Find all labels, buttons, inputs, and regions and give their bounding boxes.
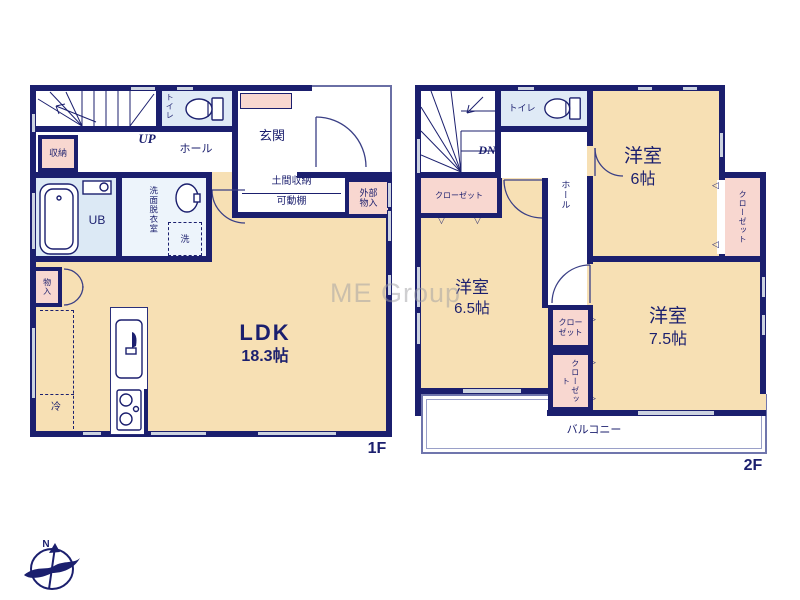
f2-window-right-3 <box>761 314 766 336</box>
f1-ldk-name: LDK <box>200 320 330 345</box>
vanity-icon <box>82 180 112 196</box>
f2-wall-room6-b <box>587 176 593 264</box>
f2-closet-d: クローゼット <box>548 350 593 412</box>
f2-room75-size: 7.5帖 <box>620 331 716 349</box>
f1-window-bottom-1 <box>82 431 102 436</box>
f2-window-right-2 <box>761 276 766 298</box>
f1-window-right-1 <box>387 182 392 208</box>
f1-porch <box>312 85 392 172</box>
ldk-door-arc <box>212 188 248 226</box>
f2-closet-c-line1: クロー <box>559 318 583 327</box>
stove-icon <box>115 388 143 432</box>
f1-window-top-2 <box>176 86 194 91</box>
f2-window-top-2 <box>637 86 653 91</box>
f1-window-right-2 <box>387 210 392 242</box>
shelf-divider <box>242 193 341 194</box>
f1-hall-label: ホール <box>174 143 218 156</box>
f1-fridge-label: 冷 <box>44 402 68 414</box>
f2-closet-b: クローゼット <box>719 172 766 262</box>
f1-shelf-label: 可動棚 <box>238 196 345 208</box>
f1-kitchen-wall <box>144 389 148 435</box>
f1-pantry-area <box>40 310 74 434</box>
f1-washroom: 洗面脱衣室 洗 <box>122 172 212 262</box>
stairs-up-icon <box>36 91 156 126</box>
f1-doma-storage: 土間収納 可動棚 <box>238 172 345 218</box>
f1-toilet-room: トイレ <box>162 91 232 132</box>
closet-b-door-mark-1: ◁ <box>712 181 719 190</box>
f1-small-storage: 物入 <box>36 267 62 307</box>
f1-storage: 収納 <box>38 135 78 172</box>
entrance-door-arc <box>312 87 390 172</box>
f2-balcony-label: バルコニー <box>548 424 640 437</box>
f2-toilet-label: トイレ <box>505 103 539 113</box>
f1-exterior-storage: 外部 物入 <box>345 178 392 218</box>
f2-dn-label: DN <box>472 144 502 158</box>
f1-unit-bath: UB <box>36 172 122 262</box>
sink-icon <box>174 182 202 214</box>
f2-floor-label: 2F <box>736 457 770 475</box>
stairs-down-icon <box>421 91 495 172</box>
kitchen-sink-icon <box>114 318 144 380</box>
fridge-divider <box>40 394 74 395</box>
f2-window-top-1 <box>517 86 535 91</box>
compass-north-label: N <box>40 539 52 551</box>
f2-window-left-3 <box>416 312 421 345</box>
room75-door-arc <box>550 262 592 305</box>
f1-ldk-label-group: LDK 18.3帖 <box>200 320 330 367</box>
f2-closet-a-label: クローゼット <box>435 191 483 200</box>
f2-closet-c-line2: ゼット <box>559 328 583 337</box>
f1-toilet-label: トイレ <box>165 93 174 120</box>
f2-stairs <box>421 91 501 178</box>
f1-window-left-3 <box>31 327 36 399</box>
f2-closet-b-label: クローゼット <box>738 190 747 244</box>
f2-room75-extension <box>719 262 766 416</box>
f1-floor-label: 1F <box>360 440 394 458</box>
f1-storage-label: 収納 <box>49 148 67 158</box>
toilet-icon <box>182 95 228 123</box>
closet-c-door-mark: ▷ <box>589 315 596 324</box>
f2-closet-c: クロー ゼット <box>548 305 593 350</box>
f1-window-top-1 <box>130 86 156 91</box>
closet-d-door-mark-2: ▷ <box>589 394 596 403</box>
f1-ext-storage-line2: 物入 <box>359 198 377 208</box>
f1-ldk-size: 18.3帖 <box>200 348 330 366</box>
f2-hall-label: ホール <box>560 180 570 210</box>
f1-window-left-2 <box>31 192 36 250</box>
f1-ub-label: UB <box>80 214 114 228</box>
f2-wall-room6-a <box>587 132 593 146</box>
f2-closet-d-label: クローゼット <box>561 355 579 407</box>
f1-up-label: UP <box>130 132 164 147</box>
f2-room75-label-group: 洋室 7.5帖 <box>620 306 716 349</box>
f1-stairs <box>36 91 162 132</box>
f2-window-left-1 <box>416 138 421 174</box>
f2-room75-name: 洋室 <box>620 306 716 328</box>
f1-window-bottom-2 <box>150 431 207 436</box>
f2-closet-a: クローゼット <box>421 178 502 218</box>
f2-wall-room6-bottom <box>593 256 725 262</box>
f2-room6-name: 洋室 <box>608 146 678 168</box>
f1-entrance-label: 玄関 <box>248 129 296 144</box>
closet-b-door-mark-2: ◁ <box>712 240 719 249</box>
f2-window-room65-bottom <box>462 388 522 394</box>
storage-door-arcs <box>62 267 92 307</box>
watermark: ME Group <box>330 278 500 309</box>
f2-room6-size: 6帖 <box>608 171 678 189</box>
toilet-icon-2f <box>541 95 585 122</box>
closet-a-door-mark-1: ▽ <box>438 216 445 225</box>
f1-window-bottom-3 <box>257 431 337 436</box>
f2-window-balcony-door <box>637 410 715 416</box>
f1-washer-space: 洗 <box>168 222 202 256</box>
f1-ext-storage-line1: 外部 <box>359 188 377 198</box>
f2-window-top-3 <box>682 86 698 91</box>
f1-kitchen-counter <box>110 307 148 435</box>
f1-shoe-cabinet <box>240 93 292 109</box>
closet-d-door-mark-1: ▷ <box>589 358 596 367</box>
closet-a-door-mark-2: ▽ <box>474 216 481 225</box>
room65-door-arc <box>502 178 544 220</box>
f2-room6-label-group: 洋室 6帖 <box>608 146 678 189</box>
f1-washroom-label: 洗面脱衣室 <box>148 186 158 234</box>
f2-window-right-1 <box>719 132 724 158</box>
f1-window-left-1 <box>31 113 36 133</box>
f2-toilet-room: トイレ <box>501 91 593 132</box>
f1-small-storage-label: 物入 <box>42 278 51 296</box>
bathtub-icon <box>38 182 80 256</box>
f1-washer-label: 洗 <box>180 234 189 244</box>
floorplan-canvas: トイレ 収納 UP ホール UB 洗面脱衣室 洗 <box>0 0 800 600</box>
